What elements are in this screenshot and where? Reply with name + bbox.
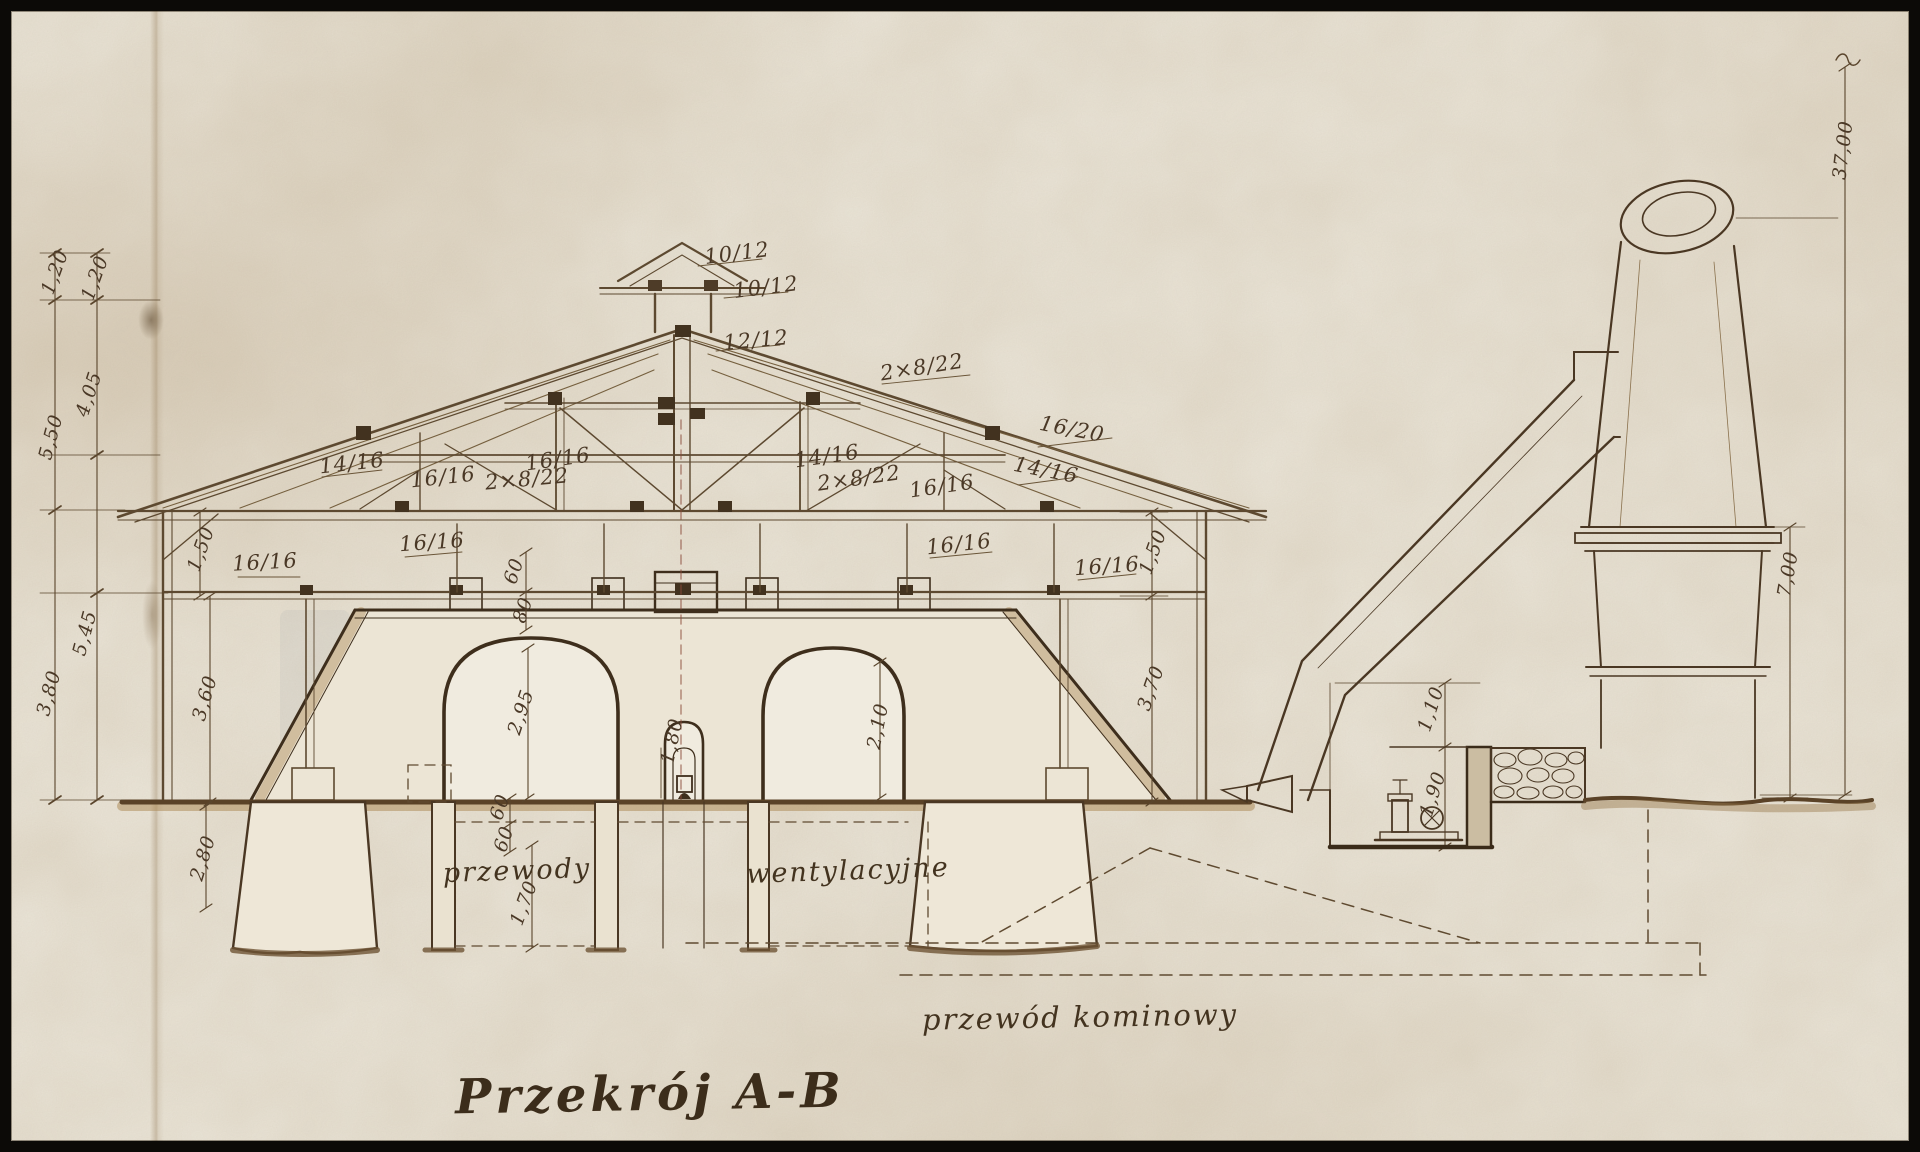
label-przewod-kominowy: przewód kominowy [922, 997, 1239, 1037]
scanned-blueprint-sheet: 10/12 10/12 12/12 2×8/22 16/20 14/16 16/… [0, 0, 1920, 1152]
label-przewody: przewody [442, 853, 591, 889]
paper-grain [0, 0, 1920, 1152]
timber-size-label: 16/16 [1073, 552, 1140, 581]
timber-size-label: 16/16 [398, 528, 465, 557]
drawing-title: Przekrój A-B [455, 1063, 845, 1126]
section-line-art [0, 0, 1920, 1152]
timber-size-label: 16/16 [232, 548, 299, 575]
